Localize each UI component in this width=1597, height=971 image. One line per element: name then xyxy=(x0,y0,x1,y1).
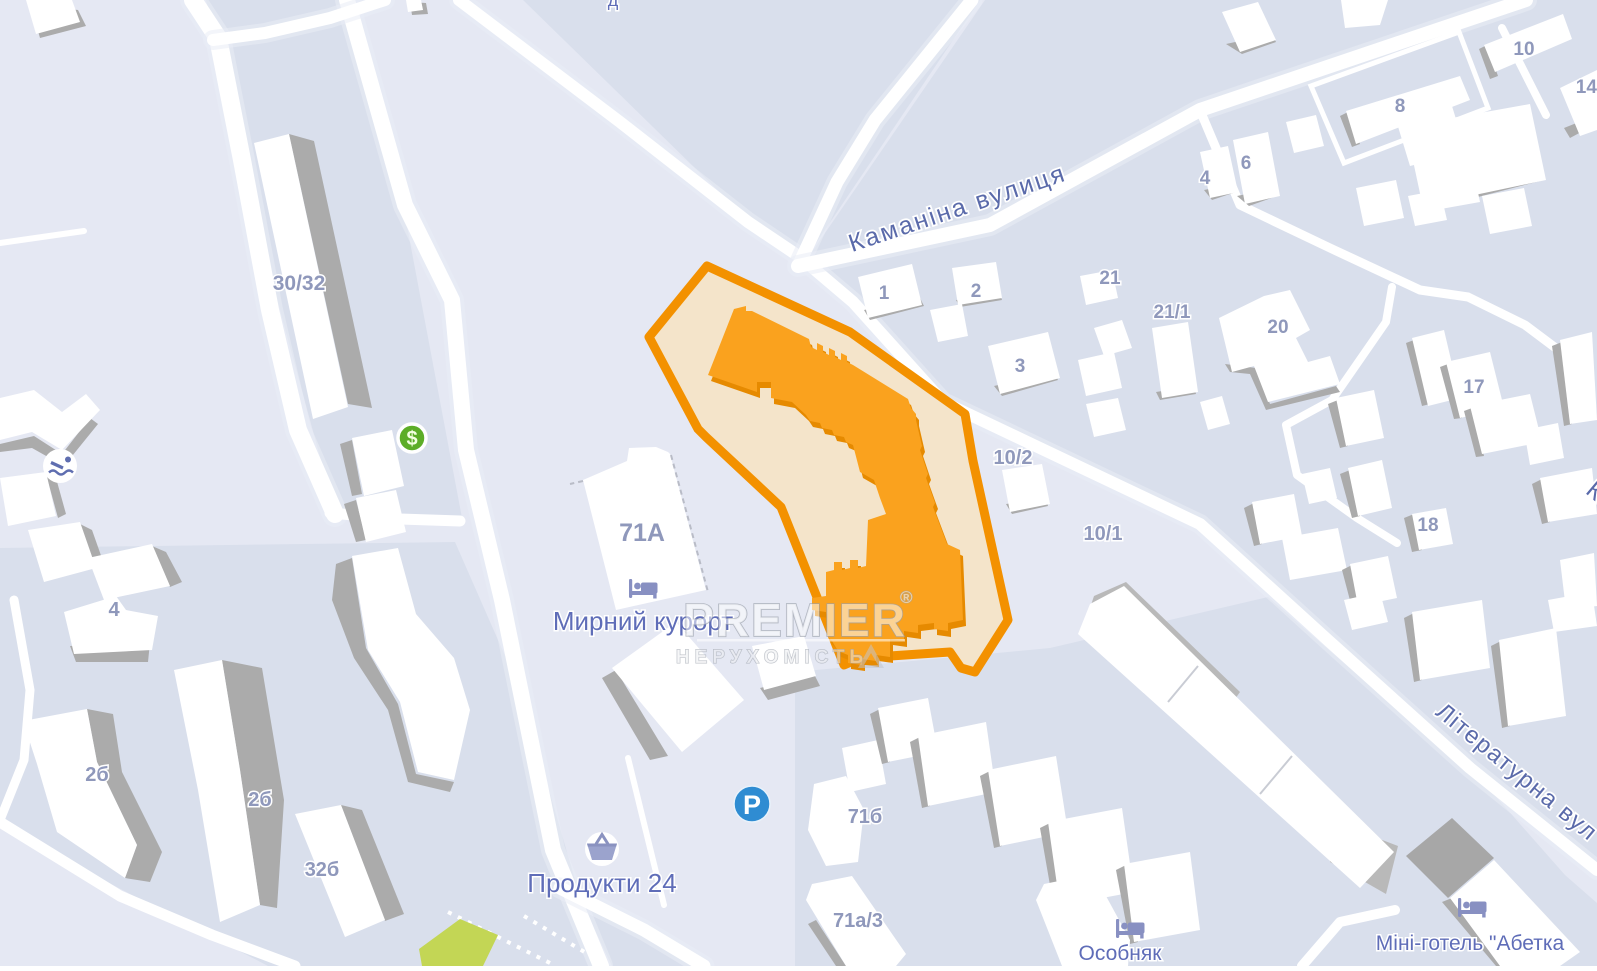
svg-text:32б: 32б xyxy=(305,859,340,881)
svg-text:10/2: 10/2 xyxy=(994,447,1033,469)
svg-text:71а/3: 71а/3 xyxy=(833,910,883,932)
svg-text:®: ® xyxy=(900,588,913,607)
svg-text:4: 4 xyxy=(1200,168,1211,189)
svg-text:18: 18 xyxy=(1417,515,1438,536)
svg-text:10: 10 xyxy=(1513,39,1534,60)
svg-text:30/32: 30/32 xyxy=(273,272,326,295)
svg-text:PREMIER: PREMIER xyxy=(683,594,907,646)
svg-text:НЕРУХОМІСТЬ: НЕРУХОМІСТЬ xyxy=(676,647,868,668)
svg-text:д: д xyxy=(608,0,619,10)
svg-text:2: 2 xyxy=(971,281,982,302)
svg-text:Особняк: Особняк xyxy=(1079,942,1163,965)
svg-text:71А: 71А xyxy=(619,519,665,547)
svg-text:4: 4 xyxy=(108,599,120,621)
svg-text:1: 1 xyxy=(879,283,890,304)
svg-text:14/: 14/ xyxy=(1576,77,1597,98)
svg-text:2б: 2б xyxy=(85,764,108,786)
svg-text:3: 3 xyxy=(1015,356,1026,377)
svg-text:Міні-готель "Абетка: Міні-готель "Абетка xyxy=(1376,932,1565,955)
svg-text:$: $ xyxy=(406,428,417,450)
svg-text:2б: 2б xyxy=(248,789,271,811)
svg-text:71б: 71б xyxy=(848,806,883,828)
svg-text:P: P xyxy=(743,790,761,820)
svg-text:8: 8 xyxy=(1395,96,1406,117)
svg-text:Продукти 24: Продукти 24 xyxy=(527,868,676,898)
svg-text:20: 20 xyxy=(1267,317,1288,338)
svg-text:10/1: 10/1 xyxy=(1084,523,1123,545)
svg-text:17: 17 xyxy=(1463,377,1484,398)
svg-text:21/1: 21/1 xyxy=(1154,302,1191,323)
svg-text:21: 21 xyxy=(1099,268,1121,289)
svg-text:6: 6 xyxy=(1241,153,1252,174)
